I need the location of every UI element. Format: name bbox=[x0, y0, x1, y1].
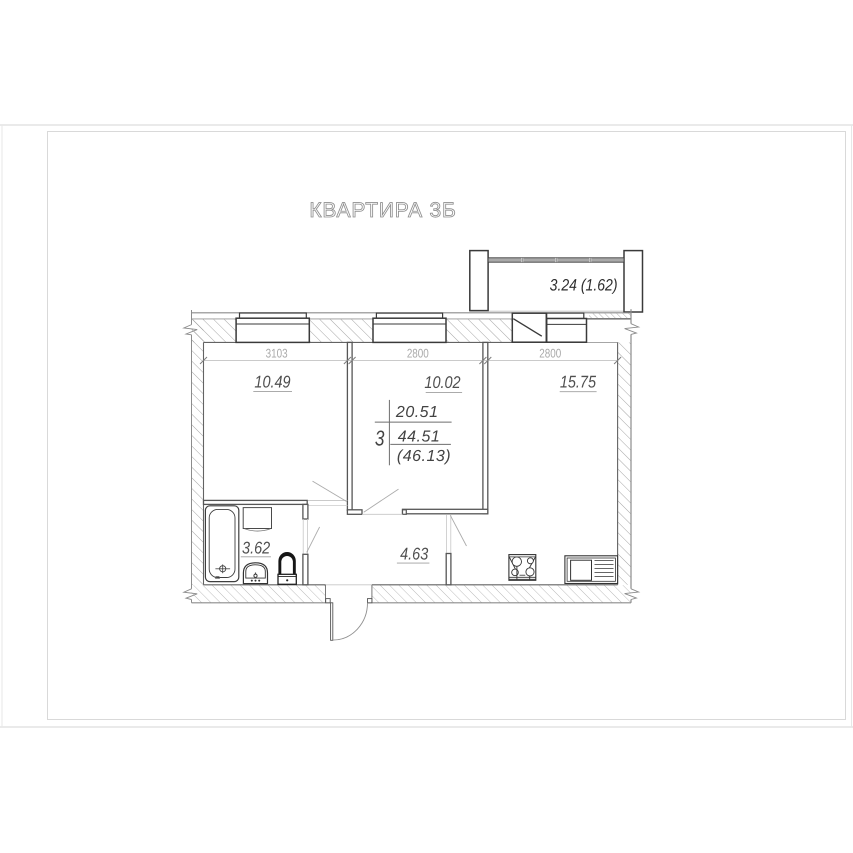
svg-text:2800: 2800 bbox=[539, 346, 561, 360]
svg-text:15.75: 15.75 bbox=[560, 372, 597, 391]
svg-text:3.62: 3.62 bbox=[242, 538, 271, 557]
svg-text:20.51: 20.51 bbox=[395, 404, 439, 421]
svg-text:3.24 (1.62): 3.24 (1.62) bbox=[550, 277, 618, 295]
svg-text:4.63: 4.63 bbox=[400, 545, 429, 564]
svg-text:10.49: 10.49 bbox=[254, 372, 291, 391]
svg-text:10.02: 10.02 bbox=[424, 373, 461, 392]
svg-text:44.51: 44.51 bbox=[398, 428, 441, 445]
svg-text:КВАРТИРА 3Б: КВАРТИРА 3Б bbox=[309, 199, 456, 222]
svg-text:3103: 3103 bbox=[266, 346, 288, 360]
svg-text:3: 3 bbox=[375, 426, 385, 450]
svg-text:(46.13): (46.13) bbox=[397, 448, 451, 465]
svg-text:2800: 2800 bbox=[407, 346, 429, 360]
